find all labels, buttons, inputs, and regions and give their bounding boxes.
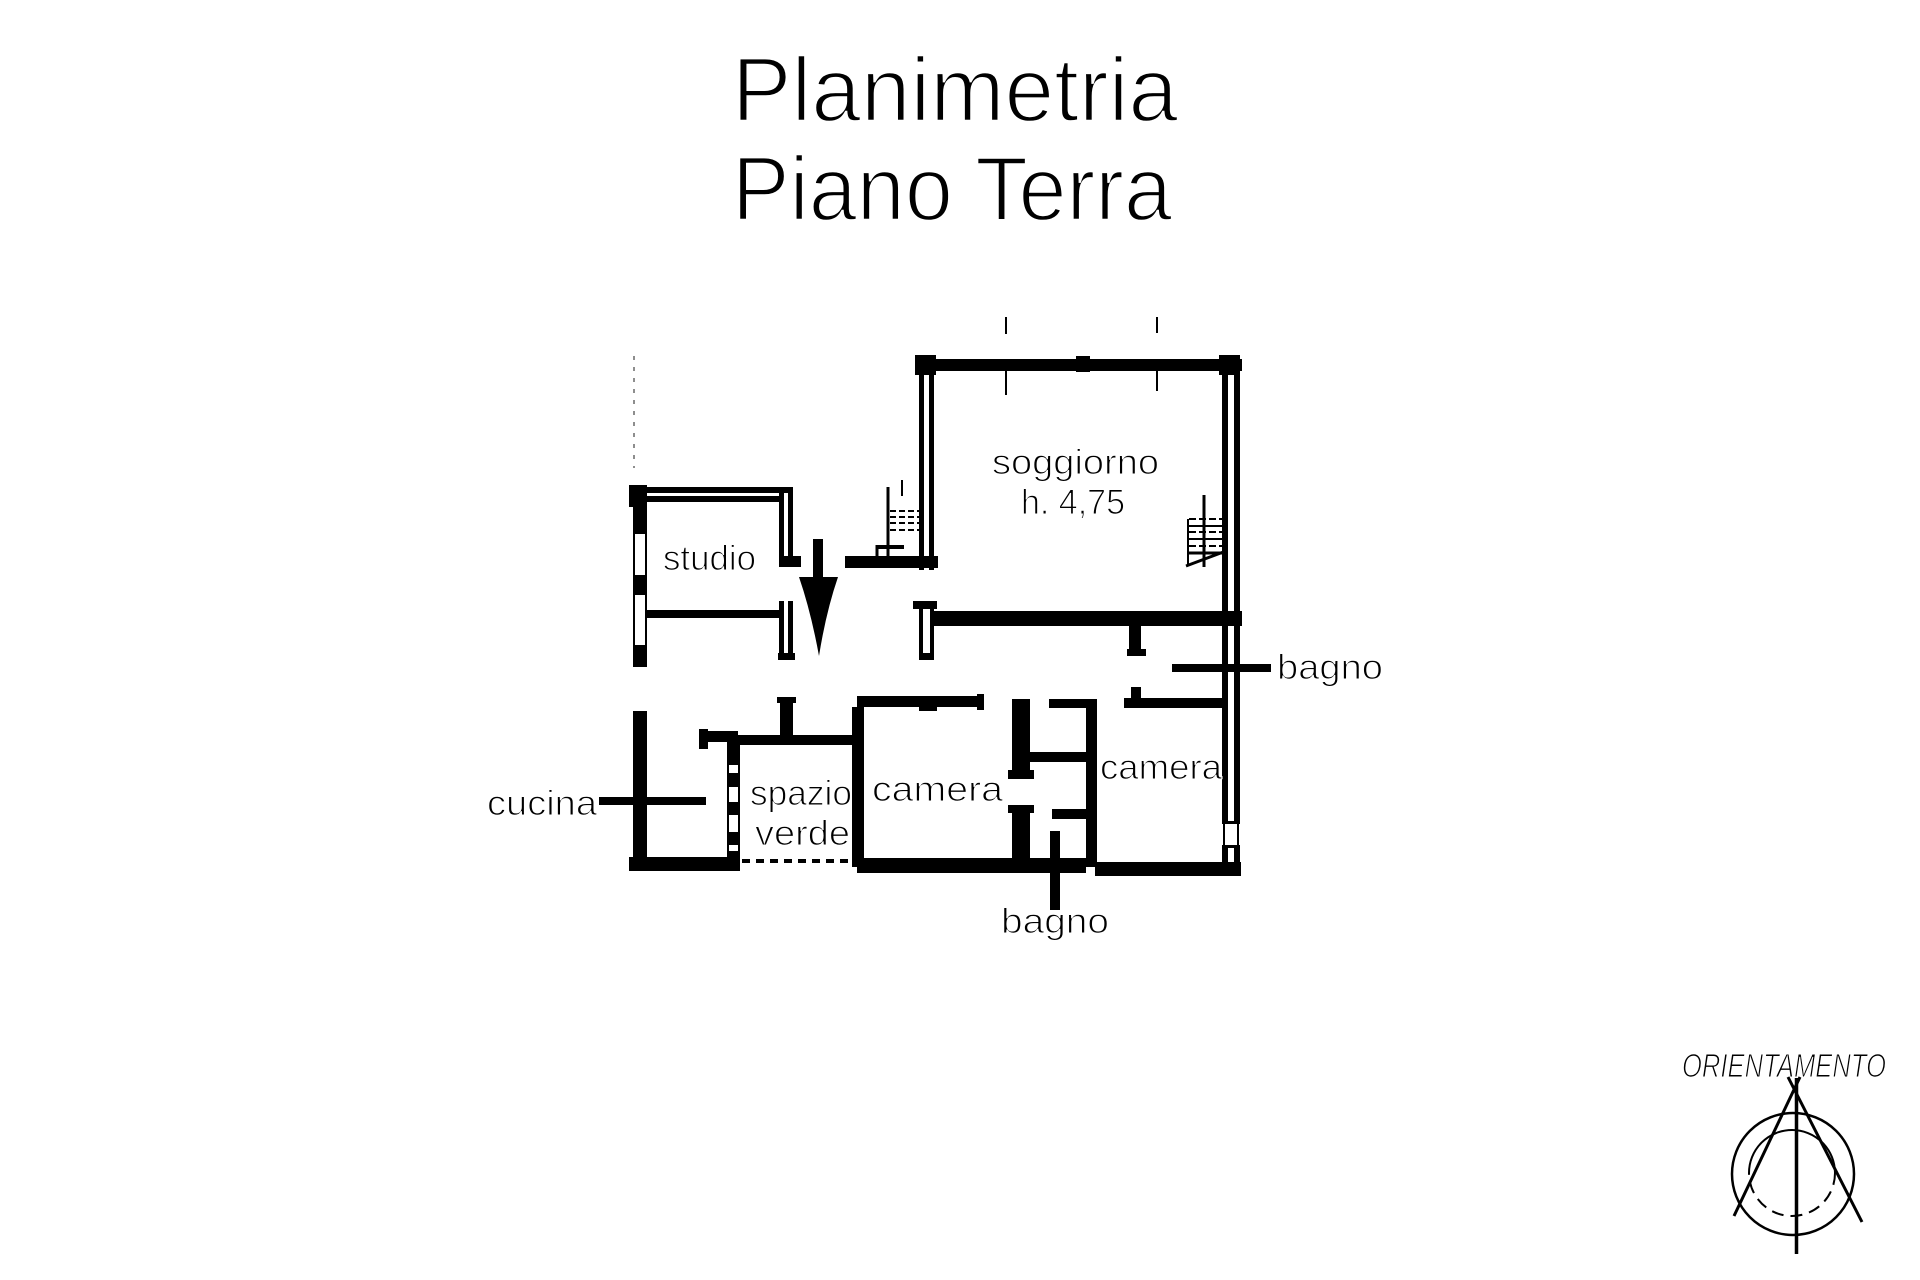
- svg-text:h. 4,75: h. 4,75: [1021, 482, 1125, 522]
- svg-text:ORIENTAMENTO: ORIENTAMENTO: [1682, 1047, 1886, 1084]
- svg-text:cucina: cucina: [487, 783, 597, 823]
- svg-text:soggiorno: soggiorno: [992, 442, 1159, 482]
- svg-text:Piano Terra: Piano Terra: [732, 139, 1172, 240]
- svg-text:verde: verde: [755, 813, 850, 853]
- svg-text:camera: camera: [872, 769, 1003, 809]
- svg-text:bagno: bagno: [1001, 901, 1109, 941]
- svg-text:spazio: spazio: [750, 773, 852, 813]
- svg-text:bagno: bagno: [1277, 647, 1383, 687]
- svg-text:studio: studio: [663, 538, 756, 578]
- svg-text:camera: camera: [1100, 747, 1222, 787]
- svg-text:Planimetria: Planimetria: [732, 40, 1178, 141]
